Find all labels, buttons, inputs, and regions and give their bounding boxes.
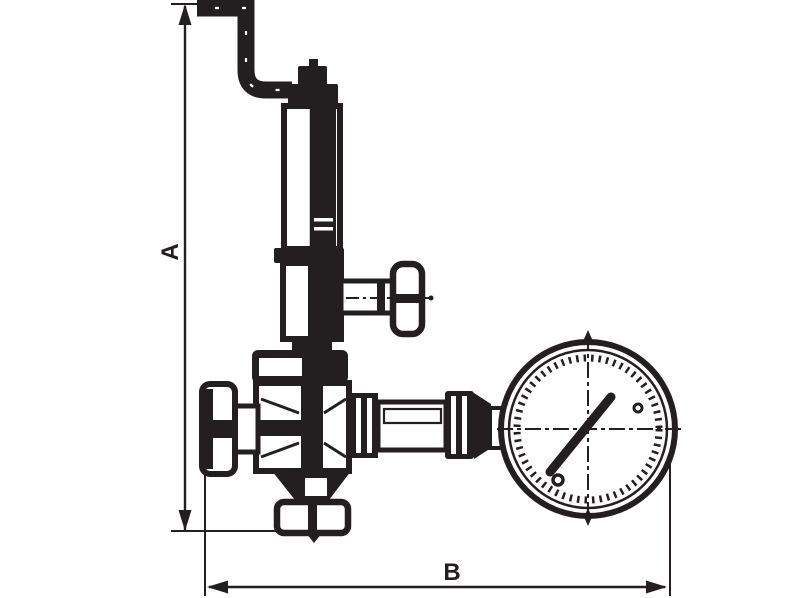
dimension-b-arrow-left <box>207 581 228 594</box>
relief-pipe-body <box>197 8 292 90</box>
dimension-b-label: B <box>443 559 460 586</box>
outlet-pointer <box>306 533 322 543</box>
spring-coil-gap <box>314 227 333 231</box>
adjusting-knob <box>298 66 327 85</box>
relief-pipe <box>197 8 292 90</box>
spring-coil-gap <box>314 218 333 222</box>
handwheel-hub-band <box>207 420 233 438</box>
dimension-a-label: A <box>157 243 184 260</box>
outlet-funnel-window <box>305 478 327 496</box>
pressure-gauge <box>497 330 683 526</box>
outlet-fitting <box>350 393 378 458</box>
needle-stop-pin <box>553 475 563 485</box>
t-handle-centerline-dot <box>429 296 434 301</box>
dimension-a-arrow-up <box>179 4 192 25</box>
outlet-fitting-rib <box>356 398 361 453</box>
valve-body <box>256 383 349 471</box>
outlet-fitting-rib <box>367 398 372 453</box>
regulator-valve-drawing: A B <box>0 0 800 598</box>
gauge-branch <box>350 391 503 459</box>
foot-flange-divider <box>308 504 317 531</box>
union-nut-rib <box>462 396 467 454</box>
top-flange-window <box>259 358 302 376</box>
dimension-a-arrow-down <box>179 510 192 531</box>
valve-seat-band <box>259 420 303 436</box>
union-nut <box>445 391 474 459</box>
spring-column <box>312 109 336 246</box>
dimension-b-arrow-right <box>646 581 667 594</box>
lower-spring-column <box>308 266 338 336</box>
inlet-handwheel <box>202 384 258 474</box>
t-handle-branch <box>341 264 434 334</box>
spring-bonnet <box>274 59 344 354</box>
union-nut-rib <box>451 396 456 454</box>
valve-stem-column <box>301 386 323 469</box>
bottom-outlet <box>272 471 351 543</box>
body-top-flange <box>252 350 348 383</box>
technical-drawing-canvas: A B <box>0 0 800 598</box>
dial-screw <box>634 404 642 412</box>
